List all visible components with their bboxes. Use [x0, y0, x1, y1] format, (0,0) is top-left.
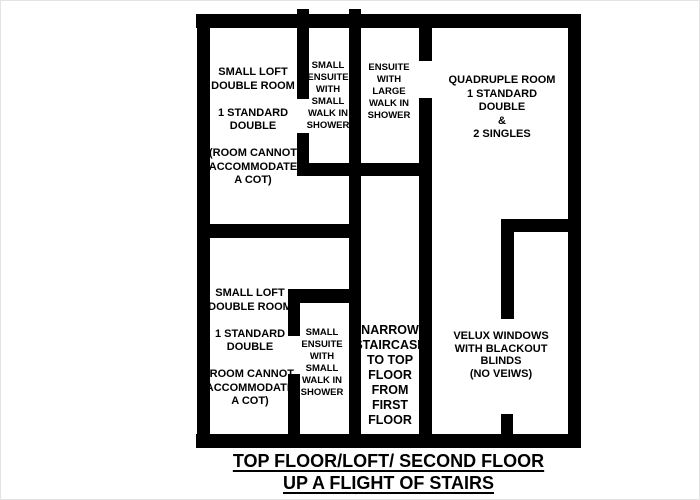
room-label-staircase: NARROW STAIRCASE TO TOP FLOOR FROM FIRST…	[354, 323, 425, 428]
wall-left-rooms-divider	[209, 224, 355, 238]
room-label-top-small-ensuite: SMALL ENSUITE WITH SMALL WALK IN SHOWER	[307, 60, 350, 132]
wall-quadruple-left-upper	[419, 14, 432, 61]
caption-line-2: UP A FLIGHT OF STAIRS	[196, 473, 581, 495]
room-label-large-ensuite: ENSUITE WITH LARGE WALK IN SHOWER	[368, 62, 411, 122]
wall-outer-bottom	[196, 434, 581, 448]
room-label-bottom-left-loft: SMALL LOFT DOUBLE ROOM 1 STANDARD DOUBLE…	[206, 287, 294, 409]
room-label-quadruple-room: QUADRUPLE ROOM 1 STANDARD DOUBLE & 2 SIN…	[449, 74, 556, 142]
wall-velux-left-stub	[501, 414, 513, 448]
room-label-bottom-small-ensuite: SMALL ENSUITE WITH SMALL WALK IN SHOWER	[301, 327, 344, 399]
wall-velux-left-upper	[501, 219, 514, 319]
floor-plan: SMALL LOFT DOUBLE ROOM 1 STANDARD DOUBLE…	[0, 0, 700, 500]
wall-top-ensuites-bottom	[297, 163, 431, 176]
floor-caption: TOP FLOOR/LOFT/ SECOND FLOOR UP A FLIGHT…	[196, 451, 581, 494]
caption-line-1: TOP FLOOR/LOFT/ SECOND FLOOR	[196, 451, 581, 473]
room-label-velux-windows: VELUX WINDOWS WITH BLACKOUT BLINDS (NO V…	[453, 330, 548, 380]
room-label-top-left-loft: SMALL LOFT DOUBLE ROOM 1 STANDARD DOUBLE…	[209, 66, 297, 188]
wall-outer-top	[196, 14, 581, 28]
